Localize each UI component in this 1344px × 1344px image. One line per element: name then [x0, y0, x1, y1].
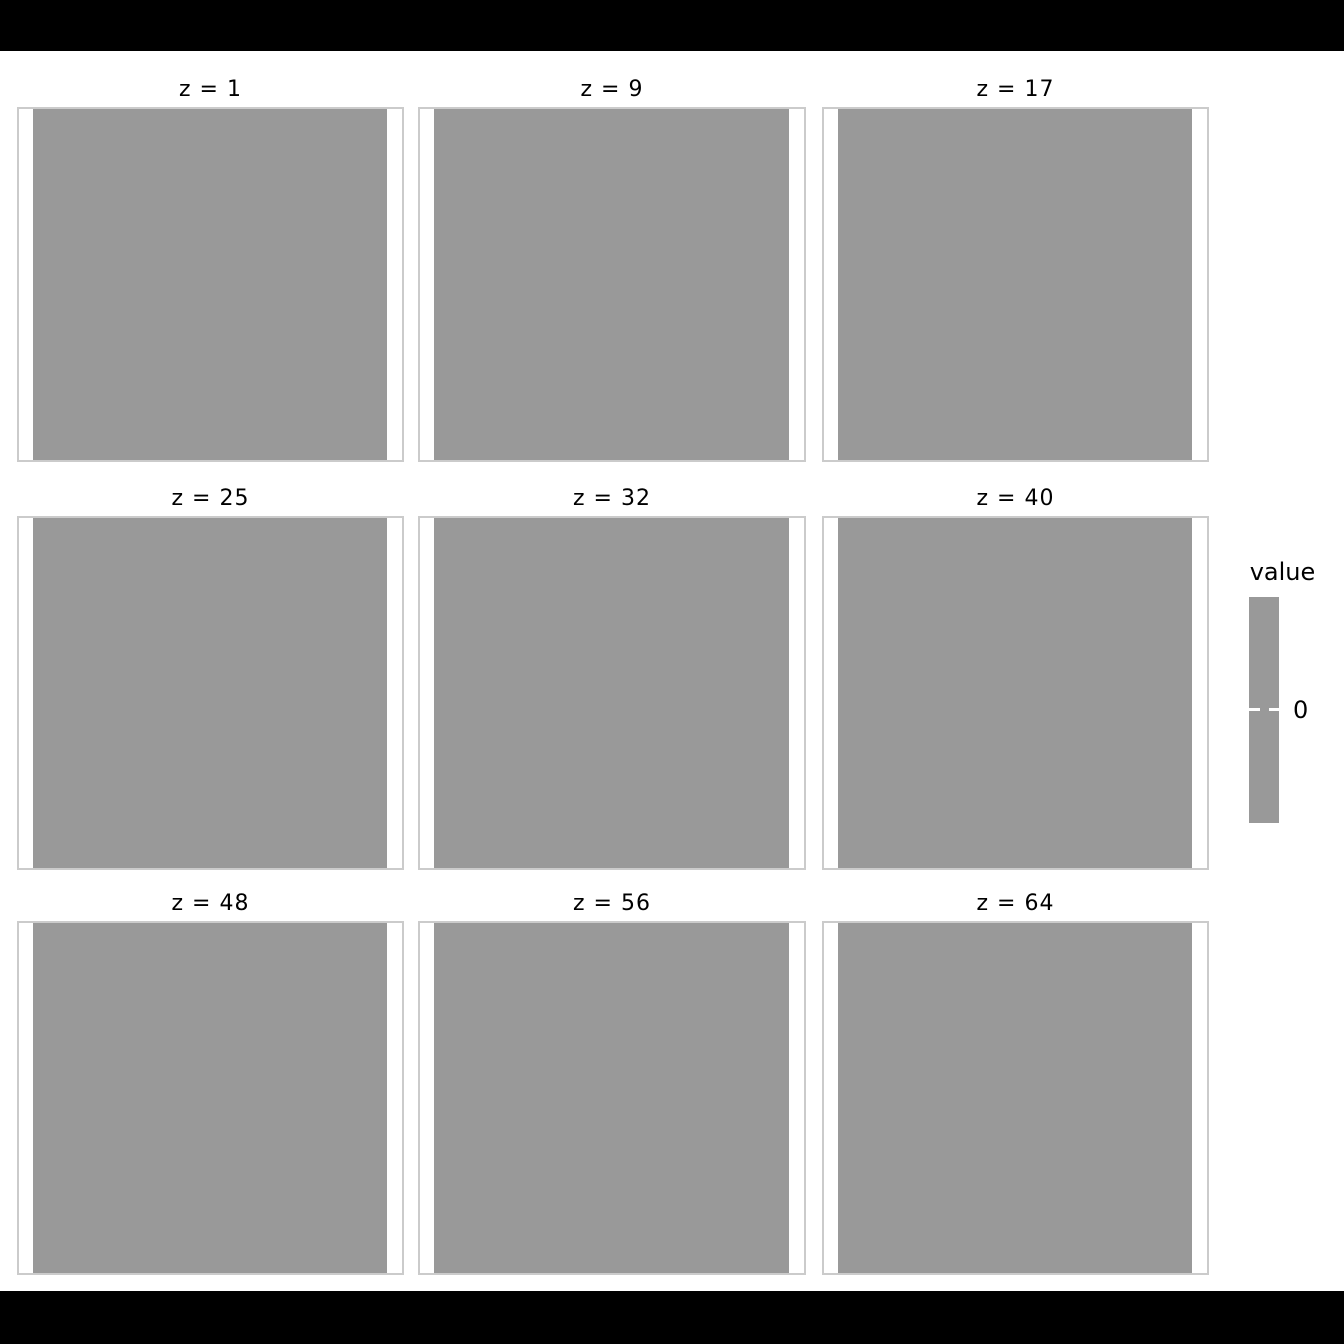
heatmap-raster [434, 923, 789, 1273]
heatmap-raster [33, 923, 387, 1273]
facet-title: z = 64 [822, 891, 1209, 921]
colorbar [1249, 597, 1279, 823]
facet-z32: z = 32 [418, 486, 806, 870]
heatmap-raster [434, 109, 789, 460]
heatmap-raster [838, 518, 1192, 868]
heatmap-raster [33, 109, 387, 460]
facet-panel [17, 107, 404, 462]
colorbar-tick-left [1249, 708, 1260, 711]
top-letterbox-bar [0, 0, 1344, 51]
facet-z40: z = 40 [822, 486, 1209, 870]
facet-title: z = 40 [822, 486, 1209, 516]
facet-title: z = 48 [17, 891, 404, 921]
heatmap-raster [838, 109, 1192, 460]
facet-panel [822, 107, 1209, 462]
heatmap-raster [434, 518, 789, 868]
facet-panel [418, 921, 806, 1275]
facet-z48: z = 48 [17, 891, 404, 1275]
facet-z25: z = 25 [17, 486, 404, 870]
facet-panel [822, 516, 1209, 870]
facet-panel [17, 921, 404, 1275]
heatmap-raster [838, 923, 1192, 1273]
legend-title: value [1240, 558, 1325, 586]
facet-panel [418, 107, 806, 462]
facet-title: z = 32 [418, 486, 806, 516]
colorbar-tick-label: 0 [1293, 696, 1308, 724]
colorbar-tick-right [1269, 708, 1279, 711]
facet-panel [822, 921, 1209, 1275]
heatmap-raster [33, 518, 387, 868]
facet-title: z = 9 [418, 77, 806, 107]
facet-panel [418, 516, 806, 870]
bottom-letterbox-bar [0, 1291, 1344, 1344]
facet-z9: z = 9 [418, 77, 806, 462]
facet-title: z = 56 [418, 891, 806, 921]
facet-z64: z = 64 [822, 891, 1209, 1275]
facet-z17: z = 17 [822, 77, 1209, 462]
facet-z1: z = 1 [17, 77, 404, 462]
facet-z56: z = 56 [418, 891, 806, 1275]
facet-title: z = 25 [17, 486, 404, 516]
plot-canvas: z = 1 z = 9 z = 17 z = 25 z = 32 z = 40 [0, 0, 1344, 1344]
facet-panel [17, 516, 404, 870]
facet-title: z = 17 [822, 77, 1209, 107]
facet-title: z = 1 [17, 77, 404, 107]
